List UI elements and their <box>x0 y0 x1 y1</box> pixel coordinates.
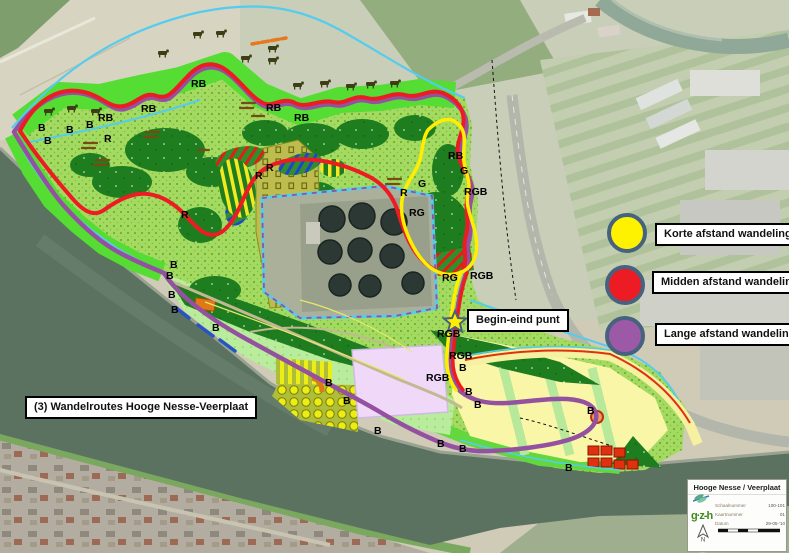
route-marker-label: R <box>104 133 112 145</box>
route-marker-label: G <box>418 178 426 190</box>
route-marker-label: B <box>168 289 176 301</box>
route-marker-label: B <box>459 362 467 374</box>
route-marker-label: B <box>474 399 482 411</box>
route-marker-label: R <box>400 187 408 199</box>
info-row-datum: Datum29-05-'10 <box>715 521 785 526</box>
route-marker-label: B <box>212 322 220 334</box>
north-label: N <box>701 538 705 543</box>
scale-bar <box>718 528 780 534</box>
north-arrow-icon: N <box>696 524 710 542</box>
route-marker-label: B <box>66 124 74 136</box>
route-marker-label: B <box>587 405 595 417</box>
route-marker-label: RG <box>409 207 425 219</box>
route-marker-label: RGB <box>470 270 494 282</box>
route-marker-label: R <box>266 162 274 174</box>
route-marker-label: RB <box>191 78 207 90</box>
route-marker-label: RGB <box>464 186 488 198</box>
route-marker-label: B <box>465 386 473 398</box>
info-row-schaal: Schaalnummer100-101 <box>715 503 785 508</box>
route-marker-label: RGB <box>449 350 473 362</box>
route-marker-label: B <box>459 443 467 455</box>
dragonfly-logo-icon <box>691 492 711 504</box>
route-marker-label: B <box>374 425 382 437</box>
route-marker-label: R <box>255 170 263 182</box>
legend-dot-korte <box>607 213 647 253</box>
legend-label-lange: Lange afstand wandeling <box>655 323 789 346</box>
treatment-plant <box>262 186 437 318</box>
legend-dot-midden <box>605 265 645 305</box>
map-viewport: BBBBRBRBRBRBRBRBRRRRRGGRGRGRGBRGBRGBRGBR… <box>0 0 789 553</box>
route-marker-label: B <box>166 270 174 282</box>
title-block: Hooge Nesse / Veerplaat g·z-h N Schaalnu… <box>687 479 787 552</box>
info-row-kaart: Kaartnummer01 <box>715 512 785 517</box>
route-marker-label: B <box>44 135 52 147</box>
route-marker-label: G <box>460 165 468 177</box>
route-marker-label: RB <box>448 150 464 162</box>
route-marker-label: B <box>38 122 46 134</box>
legend-label-korte: Korte afstand wandeling <box>655 223 789 246</box>
route-marker-label: RGB <box>426 372 450 384</box>
map-title-box: (3) Wandelroutes Hooge Nesse-Veerplaat <box>25 396 257 419</box>
route-marker-label: B <box>171 304 179 316</box>
begin-end-label-box: Begin-eind punt <box>467 309 569 332</box>
route-marker-label: RB <box>98 112 114 124</box>
route-marker-label: B <box>325 377 333 389</box>
route-marker-label: B <box>343 395 351 407</box>
route-marker-label: R <box>181 209 189 221</box>
route-marker-label: B <box>437 438 445 450</box>
route-marker-label: RB <box>141 103 157 115</box>
gzh-logo: g·z-h <box>691 510 712 522</box>
route-marker-label: RB <box>294 112 310 124</box>
route-marker-label: B <box>86 119 94 131</box>
route-marker-label: RGB <box>437 328 461 340</box>
route-marker-label: RB <box>266 102 282 114</box>
legend-label-midden: Midden afstand wandeling <box>652 271 789 294</box>
route-marker-label: B <box>565 462 573 474</box>
route-marker-label: RG <box>442 272 458 284</box>
legend-dot-lange <box>605 316 645 356</box>
